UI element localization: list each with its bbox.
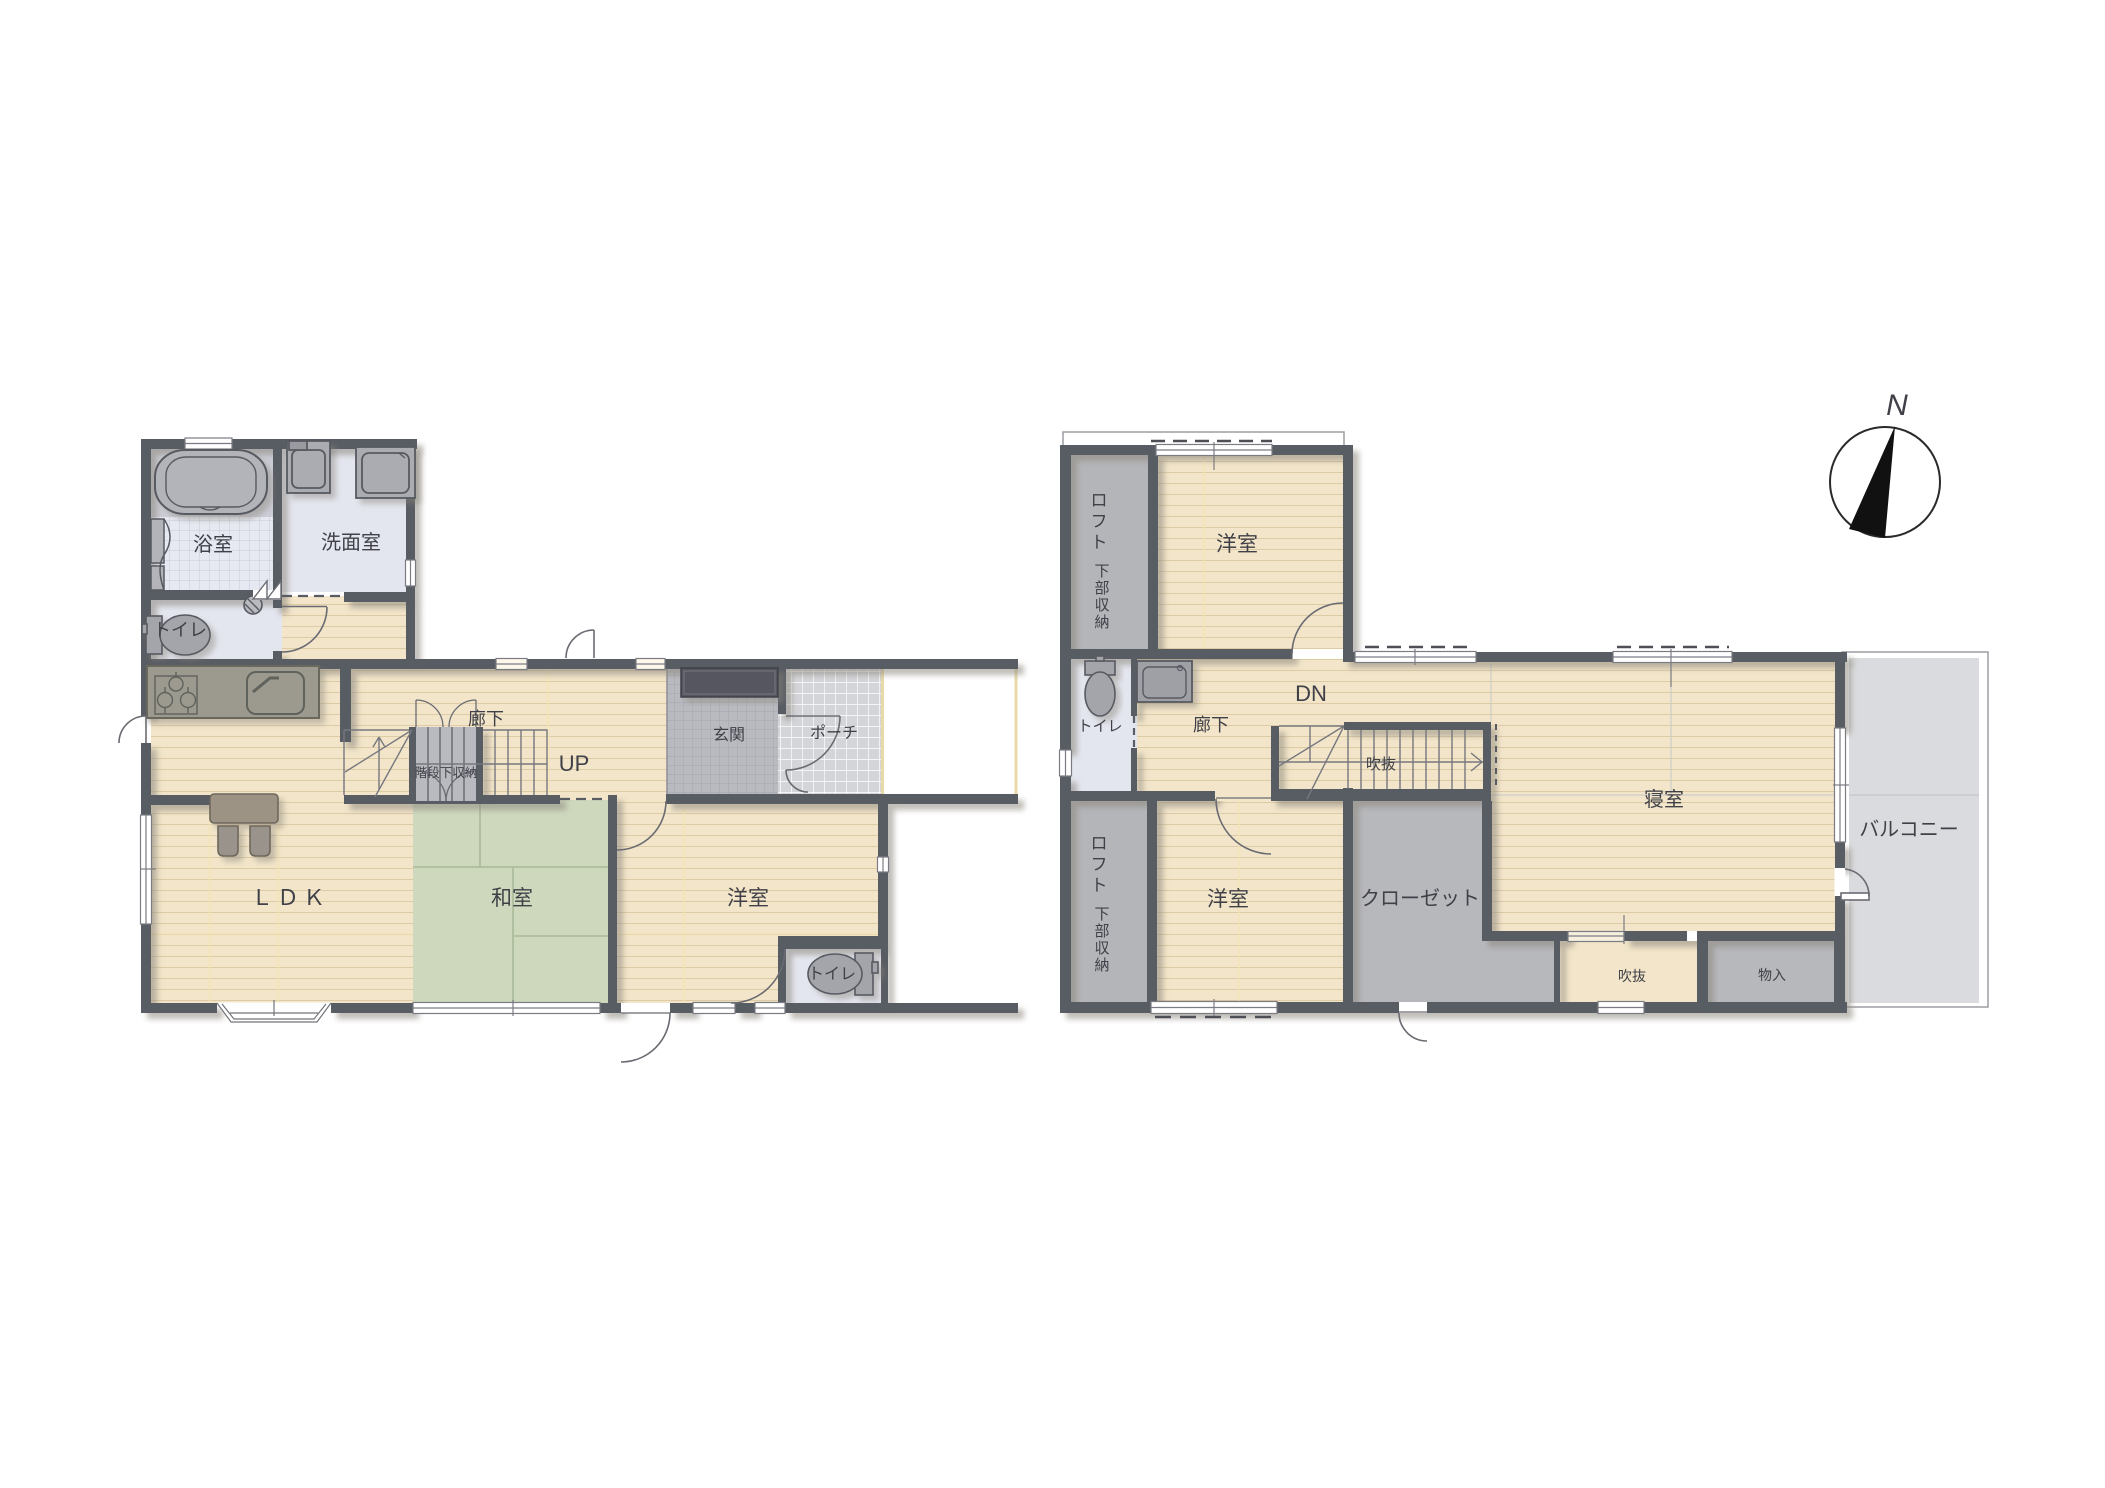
svg-text:洋室: 洋室 <box>1216 533 1258 556</box>
svg-text:下: 下 <box>1094 906 1109 923</box>
svg-text:部: 部 <box>1094 580 1109 597</box>
svg-text:和室: 和室 <box>491 887 533 910</box>
svg-text:廊下: 廊下 <box>468 709 504 729</box>
svg-text:洋室: 洋室 <box>1207 888 1249 911</box>
svg-text:洗面室: 洗面室 <box>321 531 381 554</box>
svg-text:ロ: ロ <box>1091 491 1108 510</box>
svg-text:クローゼット: クローゼット <box>1360 887 1480 910</box>
svg-text:ト: ト <box>1091 533 1108 552</box>
svg-text:廊下: 廊下 <box>1193 715 1229 735</box>
svg-text:吹抜: 吹抜 <box>1618 968 1646 984</box>
svg-text:ポーチ: ポーチ <box>810 724 858 742</box>
svg-text:バルコニー: バルコニー <box>1859 819 1959 841</box>
svg-text:トイレ: トイレ <box>1077 718 1122 735</box>
svg-text:玄関: 玄関 <box>713 726 745 744</box>
svg-text:階段下収納: 階段下収納 <box>415 765 478 780</box>
svg-text:フ: フ <box>1091 855 1108 874</box>
svg-text:洋室: 洋室 <box>727 887 769 910</box>
svg-text:納: 納 <box>1094 957 1109 974</box>
svg-text:寝室: 寝室 <box>1644 788 1684 811</box>
svg-text:物入: 物入 <box>1758 967 1786 983</box>
svg-text:フ: フ <box>1091 512 1108 531</box>
svg-text:ト: ト <box>1091 876 1108 895</box>
svg-text:N: N <box>1886 389 1908 422</box>
svg-text:下: 下 <box>1094 563 1109 580</box>
svg-text:部: 部 <box>1094 923 1109 940</box>
svg-text:トイレ: トイレ <box>153 620 207 640</box>
svg-text:浴室: 浴室 <box>193 533 233 556</box>
svg-text:DN: DN <box>1295 681 1327 706</box>
svg-text:吹抜: 吹抜 <box>1366 756 1396 773</box>
svg-text:トイレ: トイレ <box>808 966 856 983</box>
svg-text:UP: UP <box>559 751 590 776</box>
svg-text:収: 収 <box>1094 597 1109 614</box>
svg-text:収: 収 <box>1094 940 1109 957</box>
svg-text:ロ: ロ <box>1091 834 1108 853</box>
svg-text:ＬＤＫ: ＬＤＫ <box>251 885 329 910</box>
svg-text:納: 納 <box>1094 614 1109 631</box>
